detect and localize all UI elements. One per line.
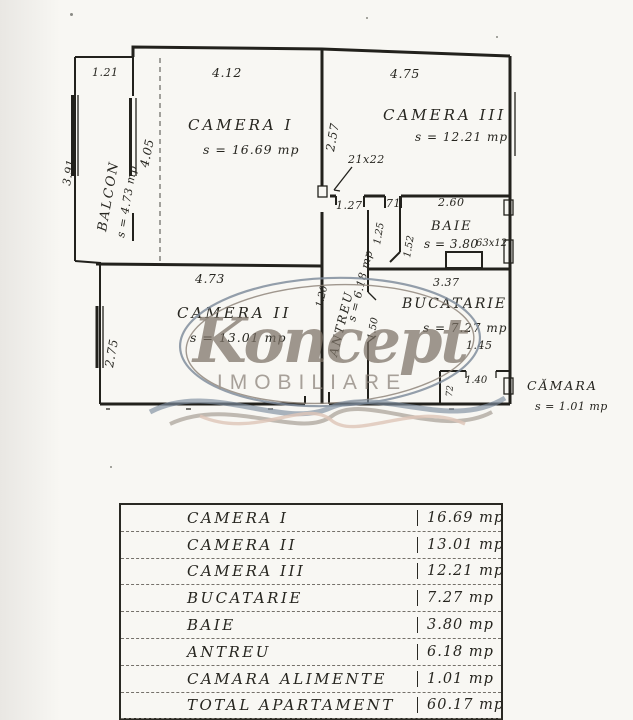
dim-balcon-door: 4.05 [137, 138, 157, 170]
door-post-mark [318, 186, 327, 197]
dim-hall-b: 71 [386, 197, 401, 210]
baie-fixture-icon [446, 252, 482, 268]
note-21x22: 21x22 [347, 153, 385, 166]
camara-label: CĂMARA [527, 378, 598, 393]
row-label: BUCATARIE [121, 589, 417, 607]
camera2-area: s = 13.01 mp [190, 330, 286, 345]
table-row: BUCATARIE 7.27 mp [121, 585, 501, 612]
area-table: CAMERA I 16.69 mp CAMERA II 13.01 mp CAM… [119, 503, 503, 720]
camara-area: s = 1.01 mp [535, 400, 608, 413]
camera1-area: s = 16.69 mp [203, 142, 299, 157]
scanned-floorplan-page: 1.21 4.12 4.75 3.91 BALCON s = 4.73 mp 4… [0, 0, 633, 720]
dim-antreu-left: 1.20 [314, 284, 330, 309]
row-label: TOTAL APARTAMENT [121, 696, 417, 714]
camera3-label: CAMERA III [383, 106, 506, 124]
camera1-label: CAMERA I [188, 116, 293, 134]
table-row: ANTREU 6.18 mp [121, 639, 501, 666]
dim-baie-left: 1.25 [372, 222, 387, 246]
dim-balcon-top: 1.21 [92, 66, 119, 79]
table-row: CAMERA III 12.21 mp [121, 559, 501, 586]
row-label: CAMERA II [121, 536, 417, 554]
row-value: 7.27 mp [417, 590, 501, 606]
baie-label: BAIE [430, 219, 473, 234]
row-label: BAIE [121, 616, 417, 634]
dim-camera2-top: 4.73 [194, 271, 225, 286]
plan-labels: 1.21 4.12 4.75 3.91 BALCON s = 4.73 mp 4… [60, 65, 608, 413]
row-value: 3.80 mp [417, 617, 501, 633]
bucatarie-label: BUCATARIE [401, 296, 507, 312]
baie-area: s = 3.80 [424, 237, 479, 251]
dim-camera3-top: 4.75 [389, 66, 420, 81]
floorplan-drawing: 1.21 4.12 4.75 3.91 BALCON s = 4.73 mp 4… [0, 0, 633, 470]
dim-camara-top: 1.40 [465, 375, 488, 386]
dim-baie-top: 2.60 [437, 196, 465, 209]
dim-camera2-left: 2.75 [102, 338, 121, 370]
row-label: ANTREU [121, 643, 417, 661]
entrance-door-posts [305, 392, 329, 404]
antreu-area: s = 6.18 mp [345, 249, 375, 323]
camera3-area: s = 12.21 mp [415, 130, 508, 144]
row-value: 16.69 mp [417, 510, 504, 526]
dim-camara-side: 72 [445, 385, 456, 398]
row-label: CAMARA ALIMENTE [121, 670, 417, 688]
row-value: 13.01 mp [417, 537, 504, 553]
row-value: 60.17 mp [417, 697, 504, 713]
scan-speck [70, 13, 73, 16]
table-row: CAMARA ALIMENTE 1.01 mp [121, 666, 501, 693]
dim-camera3-left: 2.57 [323, 122, 342, 154]
dim-bucatarie-inner: 1.45 [466, 339, 493, 352]
dim-camera1-top: 4.12 [211, 65, 242, 80]
note-arrow-icon [334, 167, 352, 191]
baie-note: 63x12 [476, 238, 507, 249]
row-label: CAMERA I [121, 509, 417, 527]
camera1-camera2-wall [96, 264, 322, 266]
scan-speck [496, 36, 498, 38]
table-row: BAIE 3.80 mp [121, 612, 501, 639]
dim-baie-wall: 1.52 [402, 235, 417, 259]
table-row: TOTAL APARTAMENT 60.17 mp [121, 693, 501, 720]
row-value: 12.21 mp [417, 563, 504, 579]
table-row: CAMERA II 13.01 mp [121, 532, 501, 559]
dim-bucatarie-top: 3.37 [433, 276, 460, 289]
row-label: CAMERA III [121, 562, 417, 580]
dim-antreu-right: 1.50 [366, 316, 381, 340]
table-row: CAMERA I 16.69 mp [121, 505, 501, 532]
dim-hall-a: 1.27 [336, 199, 363, 212]
scan-speck [366, 17, 368, 19]
row-value: 1.01 mp [417, 671, 501, 687]
scan-speck [110, 466, 112, 468]
row-value: 6.18 mp [417, 644, 501, 660]
bucatarie-area: s = 7.27 mp [423, 321, 507, 335]
camera2-label: CAMERA II [177, 304, 291, 322]
